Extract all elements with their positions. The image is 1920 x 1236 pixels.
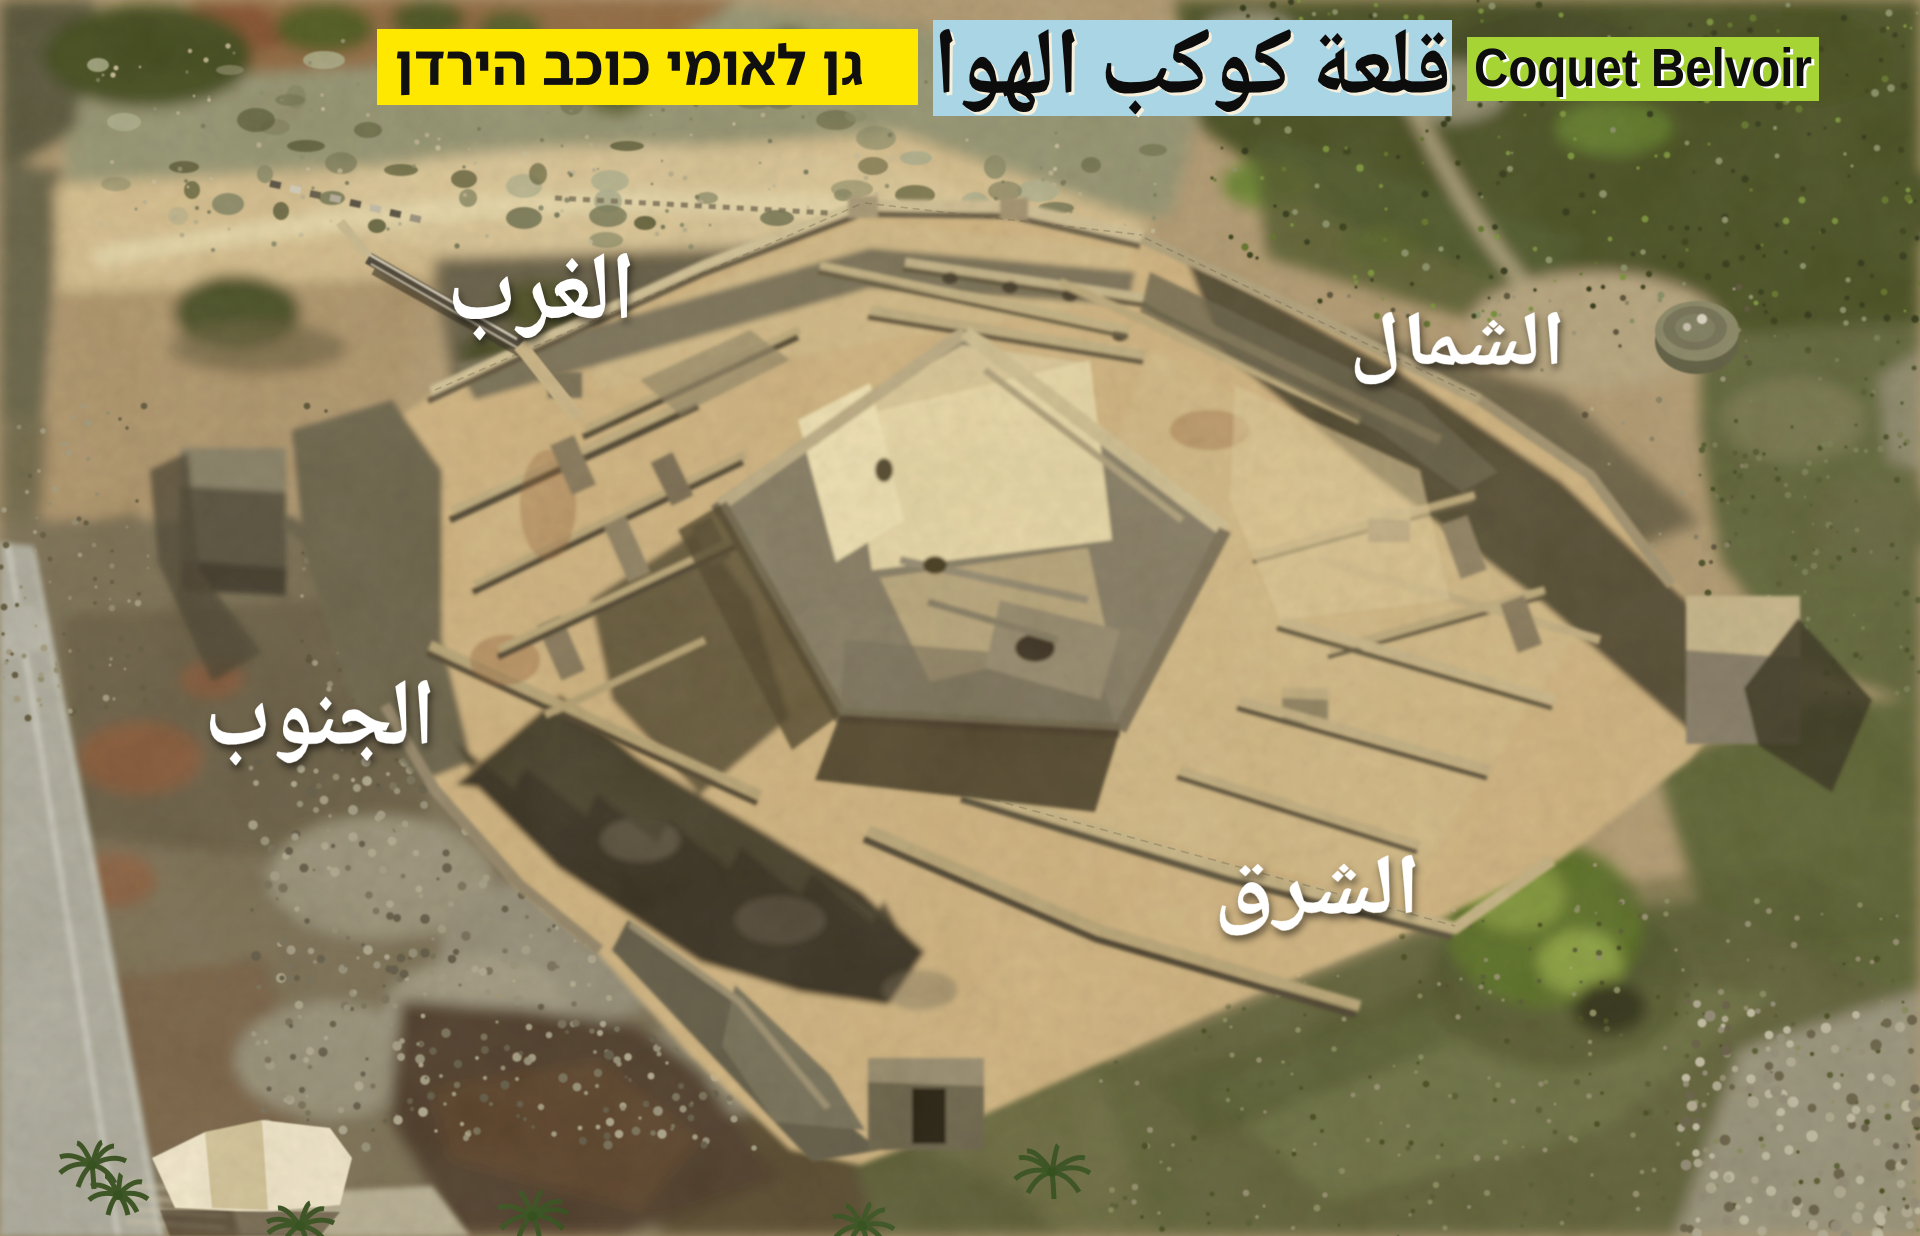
svg-text:Coquet Belvoir: Coquet Belvoir	[1474, 38, 1812, 98]
